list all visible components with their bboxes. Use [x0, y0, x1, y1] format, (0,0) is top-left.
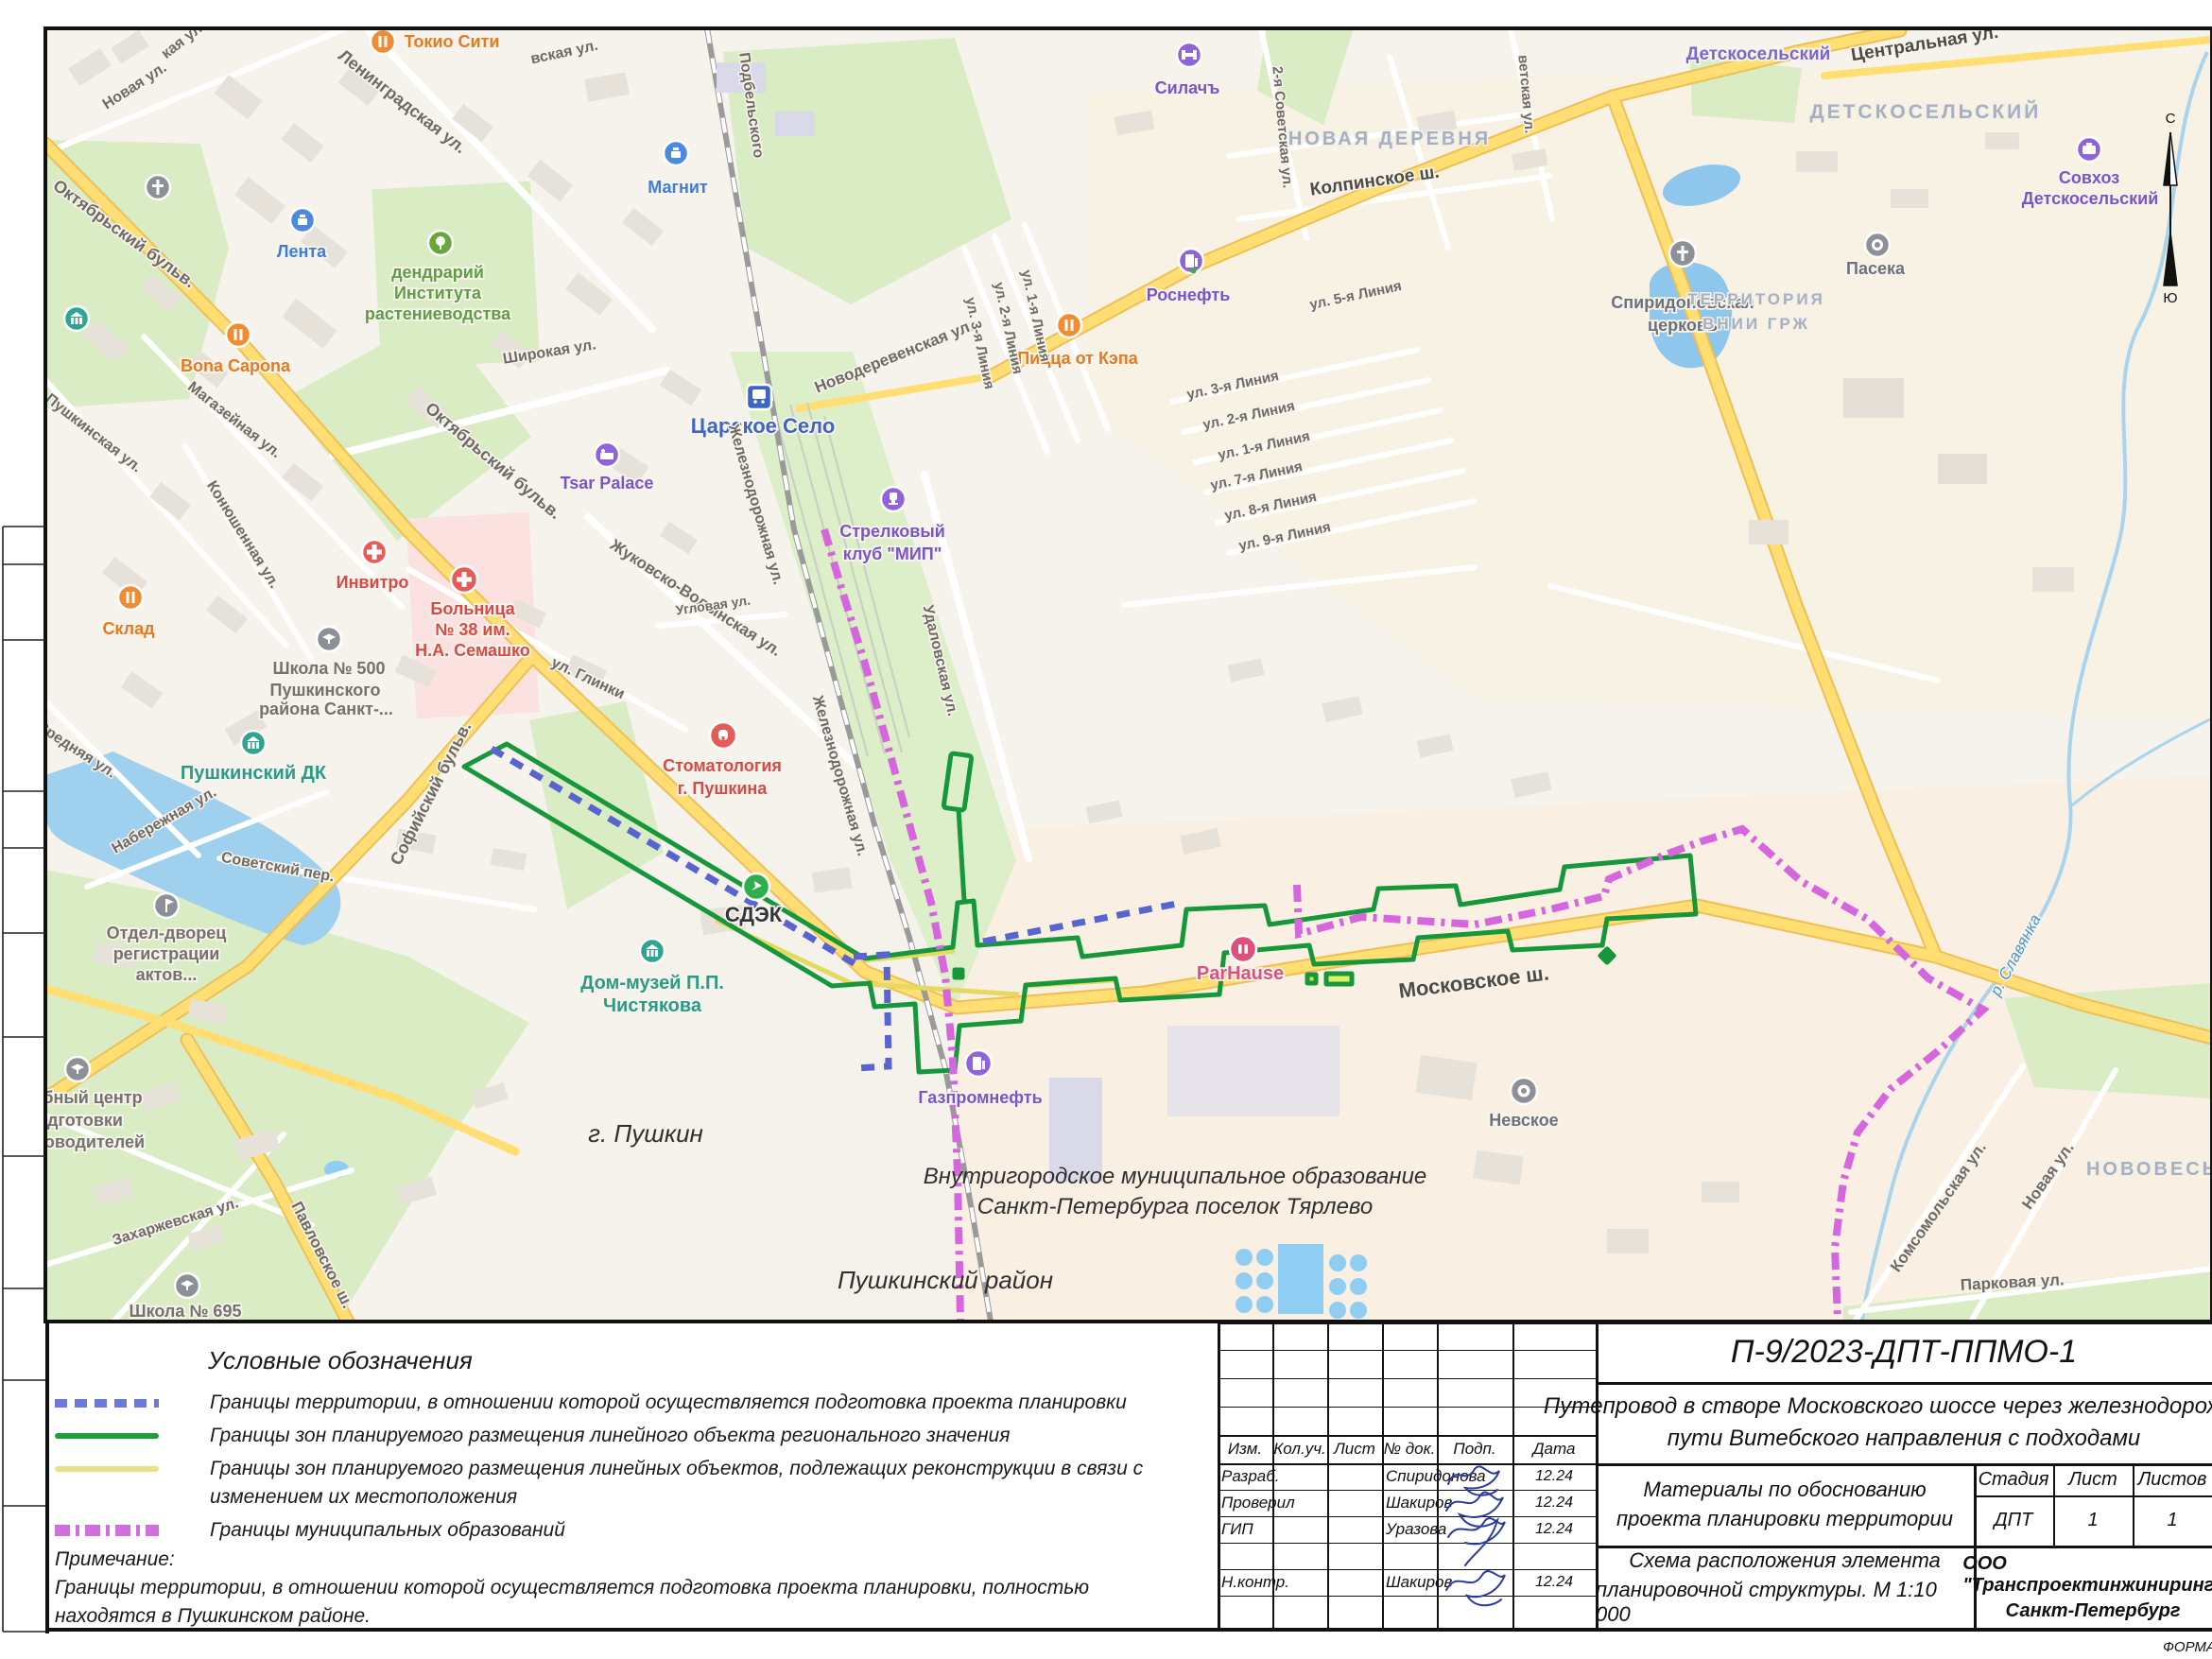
- legend-sample-territory: [55, 1399, 159, 1408]
- compass-north-label: С: [2166, 111, 2176, 127]
- legend-item-municipal: Границы муниципальных образований: [210, 1519, 565, 1542]
- town-label: Детскосельский: [1686, 44, 1831, 64]
- paseka-icon: [1865, 233, 1890, 257]
- tb-row-date: 12.24: [1512, 1569, 1596, 1596]
- legend-note-line-1: Границы территории, в отношении которой …: [55, 1577, 1089, 1599]
- legend-item-territory: Границы территории, в отношении которой …: [210, 1391, 1127, 1414]
- tb-object-line-1: Путепровод в створе Московского шоссе че…: [1544, 1393, 2212, 1420]
- tb-company-line-2: Санкт-Петербург: [2006, 1600, 2181, 1622]
- tb-materials-line-2: проекта планировки территории: [1616, 1507, 1953, 1531]
- sheet-frame-left: [45, 1322, 49, 1633]
- tb-sheet-col: Лист: [2053, 1463, 2133, 1495]
- district-label: НОВАЯ ДЕРЕВНЯ: [1288, 129, 1491, 149]
- tb-sheet-value: 1: [2053, 1495, 2133, 1546]
- tb-row-role: Разраб.: [1221, 1463, 1327, 1490]
- tb-row-role: Н.контр.: [1221, 1569, 1327, 1596]
- legend-title: Условные обозначения: [208, 1346, 473, 1375]
- tb-doc-number: П-9/2023-ДПТ-ППМО-1: [1596, 1322, 2212, 1382]
- tb-sheets-col: Листов: [2133, 1463, 2212, 1495]
- paseka-label: Пасека: [1846, 259, 1906, 278]
- district-label: ВНИИ ГРЖ: [1702, 315, 1810, 333]
- spiridonovskaya-church-icon: [1669, 240, 1696, 267]
- legend-item-reconstruction-2: изменением их местоположения: [210, 1486, 517, 1509]
- sovhoz-icon: [2077, 137, 2101, 162]
- nevskoe-icon: [1511, 1078, 1537, 1104]
- district-label: НОВОВЕСЬ: [2086, 1159, 2212, 1180]
- tb-sheets-value: 1: [2133, 1495, 2212, 1546]
- tb-stage-value: ДПТ: [1974, 1495, 2053, 1546]
- legend-item-regional: Границы зон планируемого размещения лине…: [210, 1425, 1010, 1447]
- tb-row-date: 12.24: [1512, 1490, 1596, 1516]
- tb-scheme-line-1: Схема расположения элемента: [1629, 1548, 1941, 1573]
- planning-document-sheet: { "map": { "streets": { "novaya": "Новая…: [0, 0, 2212, 1659]
- legend-note-title: Примечание:: [55, 1548, 175, 1571]
- tb-scheme-line-2: планировочной структуры. М 1:10 000: [1596, 1578, 1974, 1627]
- legend-note-line-2: находятся в Пушкинском районе.: [55, 1605, 371, 1628]
- legend-item-reconstruction-1: Границы зон планируемого размещения лине…: [210, 1458, 1143, 1480]
- tb-object-line-2: пути Витебского направления с подходами: [1668, 1426, 2141, 1452]
- tb-row-role: Проверил: [1221, 1490, 1327, 1516]
- tb-row-date: 12.24: [1512, 1516, 1596, 1543]
- legend-sample-reconstruction: [55, 1466, 159, 1472]
- tb-company-line-1: ООО "Транспроектинжиниринг": [1962, 1553, 2212, 1597]
- tb-col-koluch: Кол.уч.: [1272, 1435, 1327, 1463]
- compass-south-label: Ю: [2163, 290, 2177, 306]
- legend-sample-regional: [55, 1433, 159, 1439]
- tb-stage-col: Стадия: [1974, 1463, 2053, 1495]
- district-label: ТЕРРИТОРИЯ: [1687, 290, 1825, 308]
- tb-col-ndok: № док.: [1382, 1435, 1437, 1463]
- district-label: ДЕТСКОСЕЛЬСКИЙ: [1810, 100, 2042, 123]
- title-block: Изм. Кол.уч. Лист № док. Подп. Дата Разр…: [1218, 1322, 2212, 1632]
- svg-text:Детскосельский: Детскосельский: [2022, 189, 2159, 208]
- tb-row-role: ГИП: [1221, 1516, 1327, 1543]
- legend: Условные обозначения Границы территории,…: [0, 0, 1218, 1659]
- tb-col-podp: Подп.: [1437, 1435, 1512, 1463]
- signatures: [1437, 1461, 1512, 1622]
- tb-col-izm: Изм.: [1218, 1435, 1272, 1463]
- tb-row-date: 12.24: [1512, 1463, 1596, 1490]
- legend-sample-municipal: [55, 1525, 159, 1536]
- nevskoe-label: Невское: [1489, 1111, 1558, 1130]
- tb-col-data: Дата: [1512, 1435, 1596, 1463]
- tb-materials-line-1: Материалы по обоснованию: [1643, 1478, 1926, 1502]
- parhause-icon: [1230, 936, 1256, 962]
- form-note: ФОРМА: [2163, 1639, 2212, 1655]
- svg-text:Совхоз: Совхоз: [2059, 168, 2119, 187]
- tb-col-list: Лист: [1327, 1435, 1382, 1463]
